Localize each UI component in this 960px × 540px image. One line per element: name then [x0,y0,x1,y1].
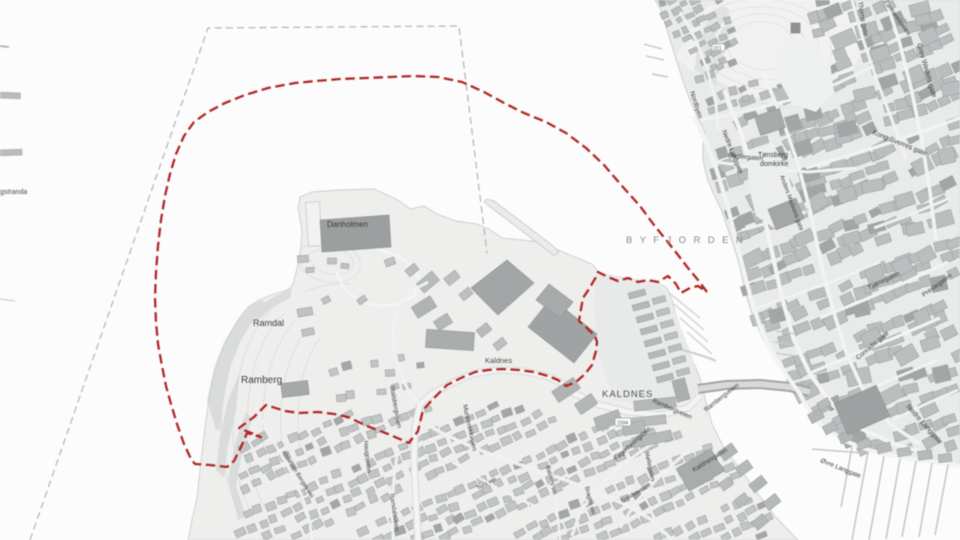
svg-text:KALDNES: KALDNES [602,389,653,400]
svg-text:311: 311 [714,46,722,52]
svg-text:Kaldnes: Kaldnes [485,356,512,365]
svg-text:Ramberg: Ramberg [241,375,282,386]
svg-text:gstranda: gstranda [0,189,27,196]
svg-text:domkirke: domkirke [760,161,789,168]
svg-text:B Y F J O R D E N: B Y F J O R D E N [626,235,745,246]
svg-text:1594: 1594 [617,421,628,427]
svg-text:Danholmen: Danholmen [327,220,368,229]
svg-text:Ramdal: Ramdal [253,318,284,328]
